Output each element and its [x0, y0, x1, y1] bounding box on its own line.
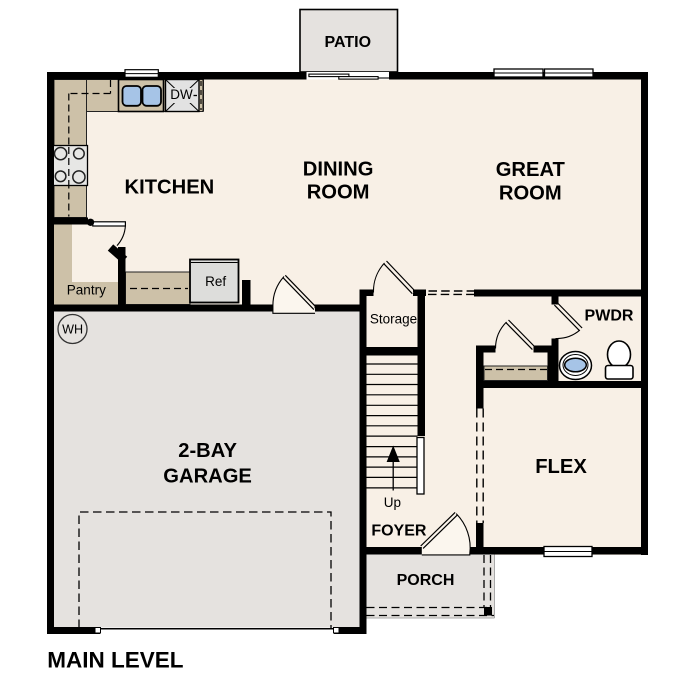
svg-text:GREAT: GREAT [496, 159, 566, 181]
svg-text:Ref: Ref [205, 274, 226, 289]
svg-text:WH: WH [62, 323, 83, 337]
svg-text:MAIN LEVEL: MAIN LEVEL [47, 647, 184, 672]
svg-text:Storage: Storage [370, 312, 417, 327]
svg-text:DW: DW [170, 87, 193, 102]
svg-text:DINING: DINING [303, 159, 374, 181]
svg-text:ROOM: ROOM [307, 182, 370, 204]
svg-text:PATIO: PATIO [325, 34, 372, 51]
svg-text:2-BAY: 2-BAY [178, 440, 237, 462]
svg-text:PWDR: PWDR [585, 308, 634, 325]
svg-text:Up: Up [384, 495, 401, 510]
svg-text:ROOM: ROOM [499, 183, 562, 205]
svg-text:PORCH: PORCH [397, 572, 455, 589]
svg-text:FOYER: FOYER [371, 522, 427, 539]
svg-text:Pantry: Pantry [67, 283, 106, 298]
svg-text:FLEX: FLEX [535, 456, 587, 478]
svg-text:KITCHEN: KITCHEN [125, 176, 215, 198]
svg-text:GARAGE: GARAGE [163, 465, 252, 487]
